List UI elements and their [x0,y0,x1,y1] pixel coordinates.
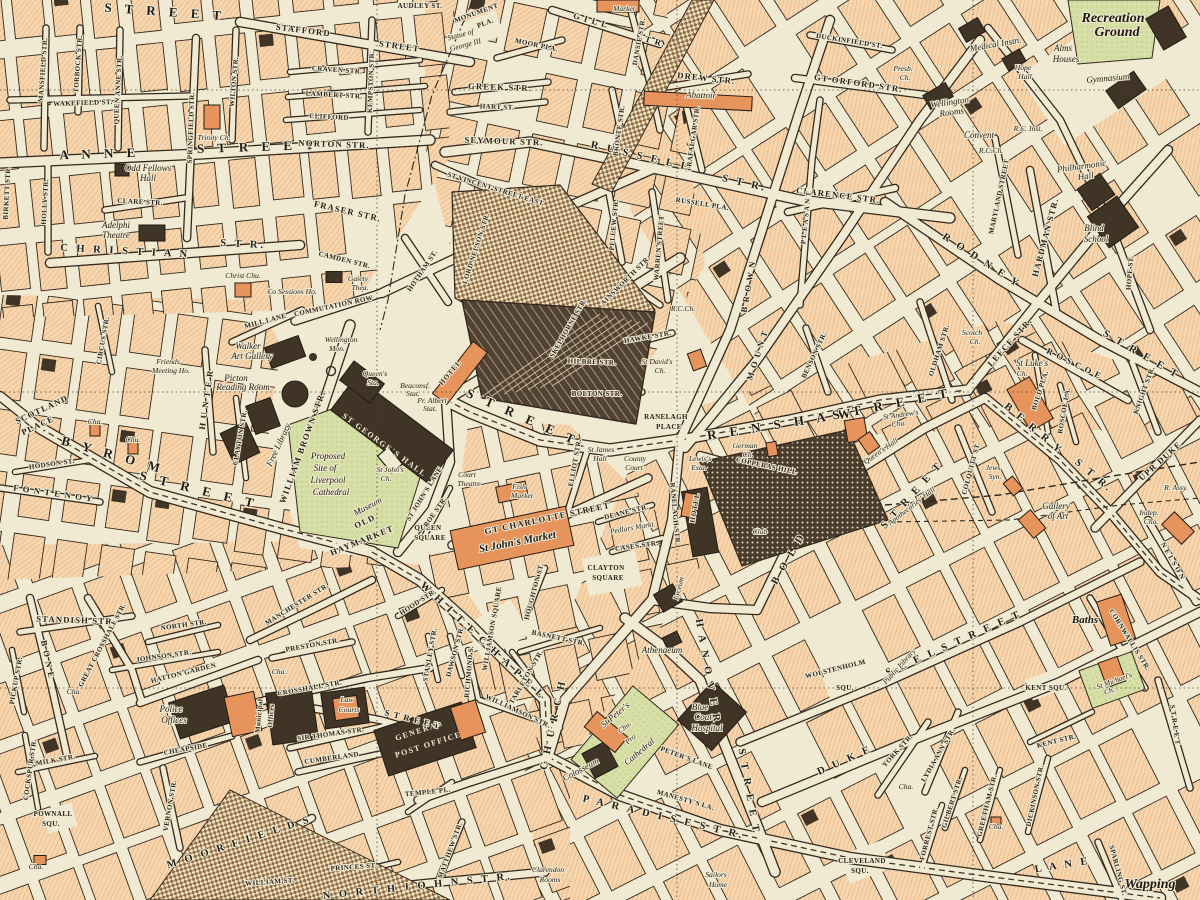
map-label-place: Fish [511,482,526,491]
map-label-place: Athenaeum [641,645,683,655]
map-label-place: Trinity Ch. [198,133,231,142]
map-label-street: CLAYTON [587,564,624,572]
map-label-place: Sta. [367,378,379,387]
map-label-place: Christ Chu. [225,271,261,280]
map-label-place: Theatre [457,479,481,488]
map-label-place: Cha. [1144,517,1159,526]
map-label-place: School [1084,234,1109,244]
map-label-place: St James [588,445,615,454]
map-label-place: Hall [1017,72,1032,81]
map-label-place: Thea. [351,283,368,292]
map-label-place: Ch. [1017,369,1028,378]
map-label-place: Cathedral [313,487,350,497]
map-label-place: Cha. [899,782,914,791]
map-label-place: Blue [692,702,709,712]
german-church [766,441,778,457]
map-label-place: Queen's [363,369,387,378]
map-label-street: POWNALL [34,810,73,818]
map-label-place: Ch. [655,366,666,375]
map-label-place: Cha. [88,417,103,426]
map-label-place: Offices [161,715,187,725]
map-label-place: Friends [155,357,180,366]
map-label-place: Odd Fellows [125,163,172,173]
map-label-place: Wapping [1124,877,1175,892]
picton-reading-room-rotunda [282,381,308,407]
map-label-place: Ch. [900,73,911,82]
map-label-place: Hall [139,173,157,183]
map-label-place: R.C.Ch. [670,304,695,313]
map-label-place: Hall [592,454,607,463]
map-label-place: Chu. [126,435,141,444]
map-label-street: RANELAGH [644,413,688,421]
map-label-street: SQUARE [414,534,446,542]
map-label-place: Cha. [67,687,82,696]
map-label-place: Sailors [705,870,727,879]
map-label-street: CLEVELAND [838,857,886,865]
map-label-place: Baths [1071,614,1098,626]
map-label-place: Rooms [539,875,561,884]
map-label-place: Houses [1052,54,1080,64]
adelphi-theatre-building [139,225,165,241]
map-label-place: Lewis's [688,454,711,463]
map-label-street: HILBRE STR. [568,357,617,367]
city-map: S T R E E TAUDLEY ST.STAFFORDSTREETCRAVE… [0,0,1200,900]
map-label-place: Market [612,4,636,13]
map-label-place: St John's [376,465,403,474]
map-label-place: Hope [1014,63,1032,72]
map-label-place: Art Gallery [230,351,272,361]
map-label-place: Reading Room [215,382,270,392]
trinity-church [204,105,220,129]
map-label-street: PLACE [656,423,682,431]
map-label-place: Walker [235,341,261,351]
map-label-place: Mon. [328,344,345,353]
map-label-street: A N N E [59,145,140,163]
map-label-place: Club [753,527,768,536]
map-label-place: Police [159,704,183,714]
map-label-place: Clarendon [532,865,564,874]
map-label-place: Courts [339,705,360,714]
map-label-place: Liverpool [310,475,346,485]
map-viewport: S T R E E TAUDLEY ST.STAFFORDSTREETCRAVE… [0,0,1200,900]
map-label-place: Cha. [989,822,1004,831]
map-label-place: Market [510,491,534,500]
wellington-monument-column [309,353,317,361]
map-label-street: AUDLEY ST. [398,2,443,10]
map-label-place: Hospital [690,723,723,733]
map-label-street: SQU. [851,867,869,875]
map-label-place: Blind [1084,223,1104,233]
map-label-place: Adelphi [101,220,130,230]
map-label-place: County [624,454,647,463]
map-label-place: Proposed [310,451,346,461]
map-label-street: SQUARE [592,574,624,582]
map-label-place: Theatre [102,230,130,240]
map-label-place: Co Sessions Ho. [267,287,317,296]
map-label-street: HART ST. [480,102,515,111]
map-label-place: Cha. [29,862,44,871]
map-label-place: of Art [1048,511,1069,521]
map-label-place: R.C. Inst. [1013,124,1043,133]
map-label-place: Presb. [892,64,912,73]
map-label-place: Alms [1053,43,1072,53]
christ-church [235,283,251,297]
map-label-street: KENT SQU. [1025,684,1066,692]
map-label-place: Ch. [743,450,754,459]
map-label-place: Jews [986,463,1001,472]
map-label-place: Court [625,463,644,472]
map-label-place: R.C.Ch. [978,146,1003,155]
map-label-place: Scotch [962,328,982,337]
map-label-place: Gaiety [348,274,369,283]
map-label-place: German [733,441,758,450]
map-label-place: Ch. [970,337,981,346]
map-label-place: Ch. [381,474,392,483]
map-label-place: Ground [1094,25,1140,40]
map-label-place: Convent [964,130,994,140]
map-label-place: Syn. [989,472,1002,481]
map-label-place: St David's [642,357,673,366]
map-label-place: Court [458,470,477,479]
map-label-place: Home [708,880,728,889]
gaiety-theatre-building [326,272,342,283]
map-label-place: Indep. [1138,508,1158,517]
map-label-street: BOLTON STR. [572,390,623,398]
map-label-place: R. Assy. [1163,483,1188,492]
map-label-street: SQU. [42,820,60,828]
map-label-place: Cha. [272,667,287,676]
map-label-place: Law [339,695,354,704]
map-label-place: Stat. [423,404,437,413]
map-label-place: Meeting Ho. [151,366,190,375]
map-label-place: Esta. [690,463,707,472]
map-label-place: Gallery [1042,501,1070,511]
map-label-place: Recreation [1081,11,1145,26]
map-label-place: Wellington [325,335,358,344]
map-label-street: SQU. [836,684,854,692]
map-label-place: Abattoir [685,89,717,100]
map-label-place: Site of [314,463,338,473]
map-label-place: St Luke's [1016,358,1049,368]
